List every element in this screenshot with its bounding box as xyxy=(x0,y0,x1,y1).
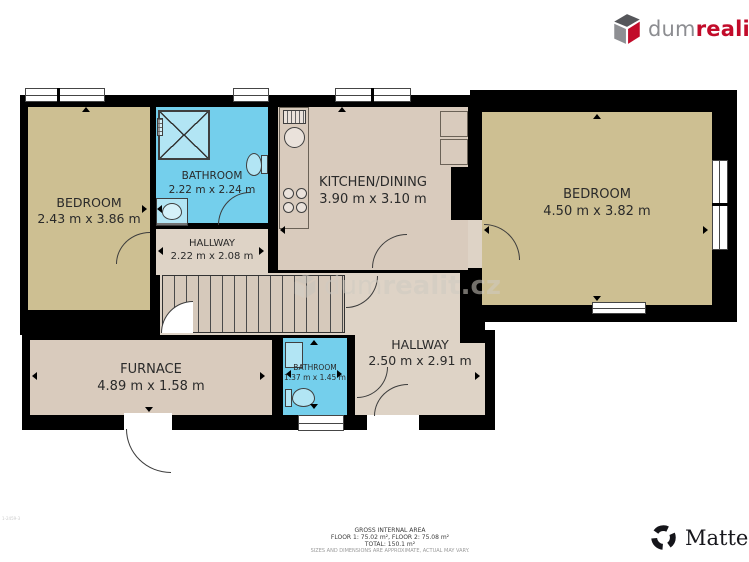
watermark-realit: realit.cz xyxy=(382,271,501,301)
window-bathroom-top xyxy=(233,88,269,102)
dishrack-icon xyxy=(283,110,306,124)
measure-arrow xyxy=(310,404,318,409)
label-furnace: FURNACE 4.89 m x 1.58 m xyxy=(30,362,272,396)
kitchen-closet-lower xyxy=(440,139,468,165)
area-summary: GROSS INTERNAL AREA FLOOR 1: 75.02 m², F… xyxy=(250,527,530,555)
measure-arrow xyxy=(310,340,318,345)
measure-arrow xyxy=(593,296,601,301)
label-hallway-top: HALLWAY 2.22 m x 2.08 m xyxy=(156,237,268,263)
room-name: BATHROOM xyxy=(156,170,268,184)
measure-arrow xyxy=(82,107,90,112)
room-dims: 3.90 m x 3.10 m xyxy=(278,192,468,209)
room-dims: 2.22 m x 2.08 m xyxy=(156,250,268,263)
kitchen-closet-upper xyxy=(440,111,468,137)
measure-arrow xyxy=(703,226,708,234)
plan-reference-code: 1-2459-3 xyxy=(2,516,20,521)
room-dims: 2.22 m x 2.24 m xyxy=(156,184,268,198)
room-name: HALLWAY xyxy=(156,237,268,250)
dumrealit-cube-icon xyxy=(612,12,642,46)
measure-arrow xyxy=(475,372,480,380)
measure-arrow xyxy=(338,107,346,112)
label-kitchen: KITCHEN/DINING 3.90 m x 3.10 m xyxy=(278,175,468,209)
disclaimer-line: SIZES AND DIMENSIONS ARE APPROXIMATE, AC… xyxy=(250,548,530,555)
room-name: KITCHEN/DINING xyxy=(278,175,468,192)
watermark-cube-icon xyxy=(293,272,317,300)
measure-arrow xyxy=(158,247,163,255)
measure-arrow xyxy=(145,407,153,412)
measure-arrow xyxy=(259,247,264,255)
measure-arrow xyxy=(280,226,285,234)
window-mullion xyxy=(371,88,374,102)
label-bathroom-top: BATHROOM 2.22 m x 2.24 m xyxy=(156,170,268,197)
window-bedroom-left-top xyxy=(25,88,105,102)
room-dims: 4.89 m x 1.58 m xyxy=(30,379,272,396)
gross-internal-area-title: GROSS INTERNAL AREA xyxy=(250,527,530,534)
measure-arrow xyxy=(157,205,162,213)
sink-basin-icon xyxy=(162,203,182,220)
measure-arrow xyxy=(286,370,291,378)
door-gap-hallway-exterior xyxy=(367,415,419,431)
window-mullion xyxy=(57,88,60,102)
shower-icon xyxy=(158,110,210,160)
room-dims: 2.43 m x 3.86 m xyxy=(28,211,150,227)
watermark-wordmark: dumrealit.cz xyxy=(324,271,501,301)
floorplan-canvas: BEDROOM 2.43 m x 3.86 m BATHROOM 2.22 m … xyxy=(0,0,749,562)
measure-arrow xyxy=(32,372,37,380)
brand-realit: realit.cz xyxy=(696,17,749,41)
floor-areas-line: FLOOR 1: 75.02 m², FLOOR 2: 75.08 m² xyxy=(250,534,530,541)
radiator-icon xyxy=(157,118,163,136)
measure-arrow xyxy=(593,114,601,119)
dumrealit-logo: dumrealit.cz xyxy=(612,12,749,46)
watermark-dum: dum xyxy=(324,271,382,301)
measure-arrow xyxy=(260,372,265,380)
measure-arrow xyxy=(337,370,342,378)
floorplan-page: { "brand": {"dum": "dum", "realit": "rea… xyxy=(0,0,749,562)
label-hallway-bottom: HALLWAY 2.50 m x 2.91 m xyxy=(355,337,485,370)
matterport-logo: Matterport xyxy=(650,524,749,551)
toilet-tank-icon xyxy=(285,389,292,407)
kitchen-sink-icon xyxy=(284,127,305,148)
dumrealit-wordmark: dumrealit.cz xyxy=(648,17,749,41)
total-area-line: TOTAL: 150.1 m² xyxy=(250,541,530,548)
window-mullion xyxy=(712,203,728,206)
room-name: FURNACE xyxy=(30,362,272,379)
room-name: BEDROOM xyxy=(482,187,712,204)
window-bedroom-right-bottom xyxy=(592,302,646,314)
matterport-wordmark: Matterport xyxy=(685,526,749,550)
room-name: HALLWAY xyxy=(355,337,485,353)
room-dims: 2.50 m x 2.91 m xyxy=(355,353,485,369)
measure-arrow xyxy=(484,226,489,234)
window-bathroom-bottom xyxy=(298,415,344,431)
matterport-pinwheel-icon xyxy=(650,524,677,551)
brand-dum: dum xyxy=(648,17,696,41)
label-bedroom-left: BEDROOM 2.43 m x 3.86 m xyxy=(28,195,150,228)
room-dims: 4.50 m x 3.82 m xyxy=(482,204,712,221)
measure-arrow xyxy=(142,205,147,213)
label-bedroom-right: BEDROOM 4.50 m x 3.82 m xyxy=(482,187,712,221)
door-furnace-exterior xyxy=(126,429,171,473)
room-name: BEDROOM xyxy=(28,195,150,211)
dumrealit-watermark: dumrealit.cz xyxy=(293,271,501,301)
